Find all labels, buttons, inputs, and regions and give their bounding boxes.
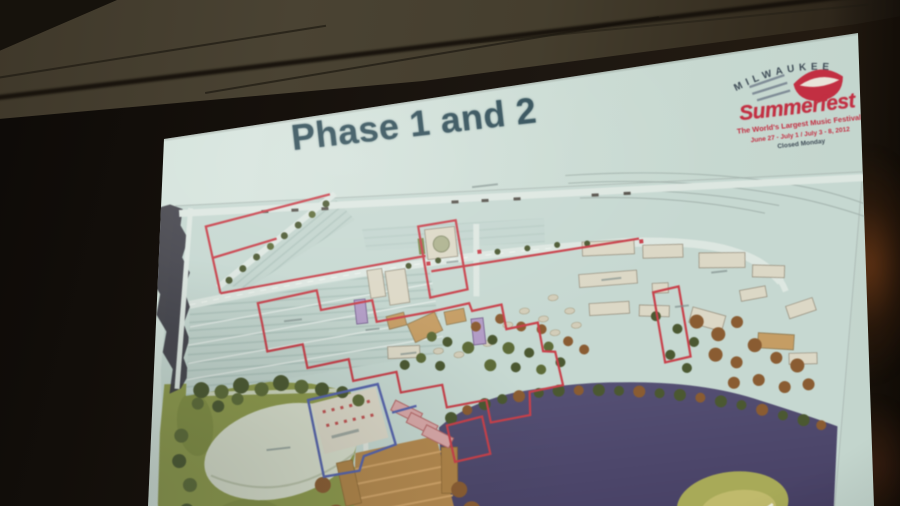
ceiling-seam xyxy=(0,25,326,80)
ceiling-seam xyxy=(470,4,868,44)
photo-of-projection-screen: Phase 1 and 2 MILWAUKEE Summerfest The W… xyxy=(0,0,900,506)
